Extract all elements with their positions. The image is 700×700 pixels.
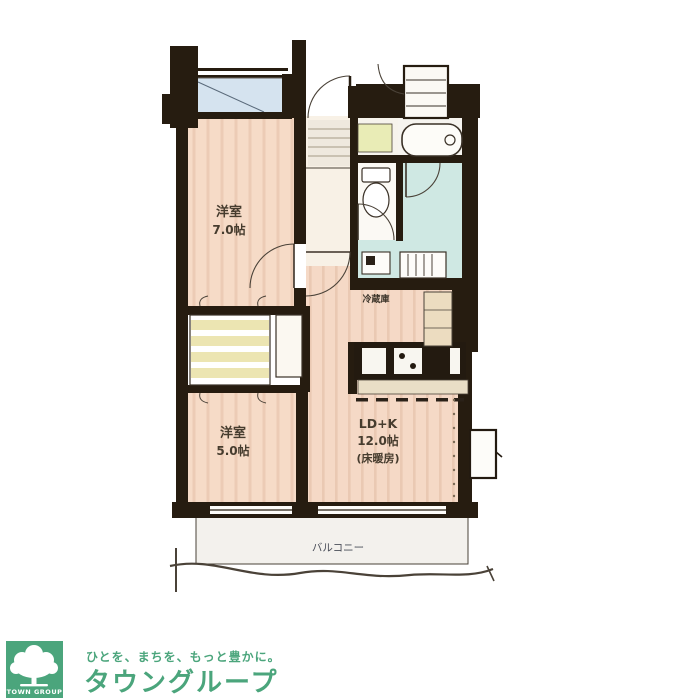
laundry-box xyxy=(358,124,392,152)
window-frame-inner xyxy=(186,75,288,78)
shoe-cabinet-box xyxy=(404,66,448,118)
counter-front xyxy=(358,380,468,394)
bedroom2-size-label: 5.0帖 xyxy=(216,443,249,458)
meter-box xyxy=(470,430,502,478)
ldk-label-line2: 12.0帖 xyxy=(357,433,399,448)
cupboard xyxy=(424,292,452,346)
bedroom1-name-label: 洋室 xyxy=(216,204,242,220)
toilet-tank xyxy=(362,168,390,182)
ground-line-end xyxy=(487,566,494,581)
entrance-tile xyxy=(308,120,350,166)
logo-company-name: タウングループ xyxy=(84,668,278,698)
bathtub xyxy=(402,124,462,156)
wall-center-upper xyxy=(294,116,306,244)
wall-closet-bottom xyxy=(188,385,308,393)
bottom-windows xyxy=(210,506,446,514)
toilet-bowl xyxy=(363,183,389,217)
ldk-label-line3: (床暖房) xyxy=(356,451,399,465)
wall-pillar-topleft xyxy=(170,46,198,128)
washer-pan xyxy=(400,252,446,278)
bay-window xyxy=(186,68,292,119)
kitchen-end-slot xyxy=(450,348,460,374)
floor-plan-drawing: バルコニー xyxy=(0,0,700,700)
wall-center-lower xyxy=(296,386,308,504)
window-post xyxy=(282,74,292,118)
kitchen-sink xyxy=(362,348,386,374)
vanity-bowl xyxy=(366,256,375,265)
town-group-logo: TOWN GROUP ひとを、まちを、もっと豊かに。 タウングループ xyxy=(6,641,281,698)
balcony: バルコニー xyxy=(170,516,494,592)
wall-left xyxy=(176,116,188,518)
fridge-label: 冷蔵庫 xyxy=(362,293,389,305)
logo-tagline: ひとを、まちを、もっと豊かに。 xyxy=(86,649,281,664)
ground-line xyxy=(170,564,493,576)
washroom xyxy=(362,252,446,278)
bedroom2-name-label: 洋室 xyxy=(220,425,246,441)
front-door-arc xyxy=(308,76,350,118)
logo-badge-text: TOWN GROUP xyxy=(7,688,63,696)
narrow-closet xyxy=(276,315,302,377)
ldk-floor-left xyxy=(306,266,350,504)
meter-box-outline xyxy=(470,430,496,478)
wall-right-upper xyxy=(462,112,478,290)
wall-stub-topcenter xyxy=(292,40,306,118)
entrance xyxy=(306,76,350,168)
wall-step-left xyxy=(162,94,172,124)
wall-toilet-right xyxy=(396,163,403,241)
stove-burner-2 xyxy=(410,363,416,369)
ldk-label-line1: LD+K xyxy=(359,416,399,431)
wall-closet-top xyxy=(188,306,308,315)
window-frame-outer xyxy=(186,68,288,71)
stove-burner-1 xyxy=(399,353,405,359)
balcony-label: バルコニー xyxy=(312,542,364,554)
wall-hall-right xyxy=(350,116,358,278)
wall-block-topright-left xyxy=(356,84,404,118)
kitchen-stove xyxy=(394,348,422,374)
floor-plan-page: バルコニー xyxy=(0,0,700,700)
bedroom1-size-label: 7.0帖 xyxy=(212,222,245,237)
balcony-floor xyxy=(196,516,468,564)
window-sill xyxy=(192,112,292,119)
